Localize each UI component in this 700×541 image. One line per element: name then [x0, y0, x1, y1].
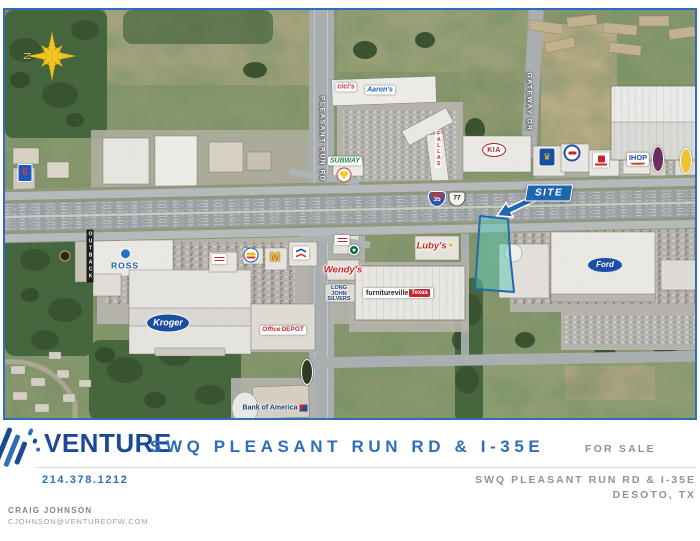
us-77-shield: 77: [449, 192, 466, 207]
mcdonalds-logo: M: [270, 251, 280, 263]
red-box-restaurant-sign: [593, 153, 609, 168]
kia-logo: KIA: [482, 143, 506, 157]
shell-logo: [337, 168, 352, 183]
phone-number: 214.378.1212: [42, 474, 129, 486]
site-label-text: SITE: [534, 188, 564, 199]
contact-email: CJOHNSON@VENTUREDFW.COM: [8, 517, 148, 526]
best-western-logo: [539, 148, 556, 167]
burger-king-logo: [244, 248, 259, 263]
ihop-logo: IHOP: [627, 153, 649, 166]
motel6-logo: 6: [18, 164, 33, 182]
pleasant-run-rd-label: PLEASANT RUN RD: [318, 96, 325, 182]
dark-oval-restaurant-sign: [301, 359, 313, 385]
small-restaurant-sign: [212, 254, 227, 264]
property-name: SWQ PLEASANT RUN RD & I-35E: [475, 473, 696, 488]
chevron-logo: [293, 247, 309, 260]
map-markers: PLEASANT RUN RDGATEWAY DR3577cici'sAaron…: [5, 10, 695, 418]
wendys-logo: Wendy's: [324, 265, 363, 275]
long-john-silvers-logo: LONG JOHN SILVERS: [324, 286, 354, 303]
furnitureville-banner: furniturevilleTexas: [363, 288, 433, 298]
sale-status: FOR SALE: [585, 443, 656, 455]
flyer-footer: VENTURE SWQ PLEASANT RUN RD & I-35E FOR …: [0, 420, 700, 541]
cicis-pizza-logo: cici's: [335, 83, 356, 92]
property-address-block: SWQ PLEASANT RUN RD & I-35E DESOTO, TX: [475, 473, 696, 502]
circular-restaurant-badge: [564, 145, 581, 162]
aarons-logo: Aaron's: [365, 86, 395, 95]
small-cafe-sign: [335, 235, 350, 245]
round-restaurant-badge: [60, 251, 71, 262]
subway-logo: SUBWAY: [328, 157, 362, 166]
flyer-page: PLEASANT RUN RDGATEWAY DR3577cici'sAaron…: [0, 0, 700, 541]
interstate-35-shield: 35: [428, 191, 446, 207]
office-depot-logo: OfficeDEPOT: [260, 326, 306, 335]
fallas-store-sign: FALLAS: [435, 130, 441, 168]
compass-rose-icon: N: [21, 28, 79, 86]
bank-of-america-logo: Bank of America: [243, 405, 308, 412]
ford-dealership-logo: Ford: [587, 257, 623, 273]
starbucks-logo: [349, 245, 360, 256]
site-callout-label: SITE: [524, 185, 573, 202]
lubys-logo: Luby's: [416, 241, 453, 251]
yellow-oval-sign: [680, 148, 692, 174]
ross-logo: ROSS: [111, 248, 139, 270]
kroger-logo: Kroger: [146, 314, 190, 333]
outback-steakhouse-sign: OUTBACK: [87, 230, 94, 283]
aerial-map: PLEASANT RUN RDGATEWAY DR3577cici'sAaron…: [3, 8, 697, 420]
divider-line: [36, 467, 696, 468]
gateway-dr-label: GATEWAY DR: [525, 73, 532, 132]
property-city: DESOTO, TX: [475, 488, 696, 503]
dark-oval-sign: [652, 146, 664, 172]
property-headline: SWQ PLEASANT RUN RD & I-35E: [150, 437, 544, 457]
contact-name: CRAIG JOHNSON: [8, 506, 92, 515]
north-label: N: [22, 52, 34, 60]
